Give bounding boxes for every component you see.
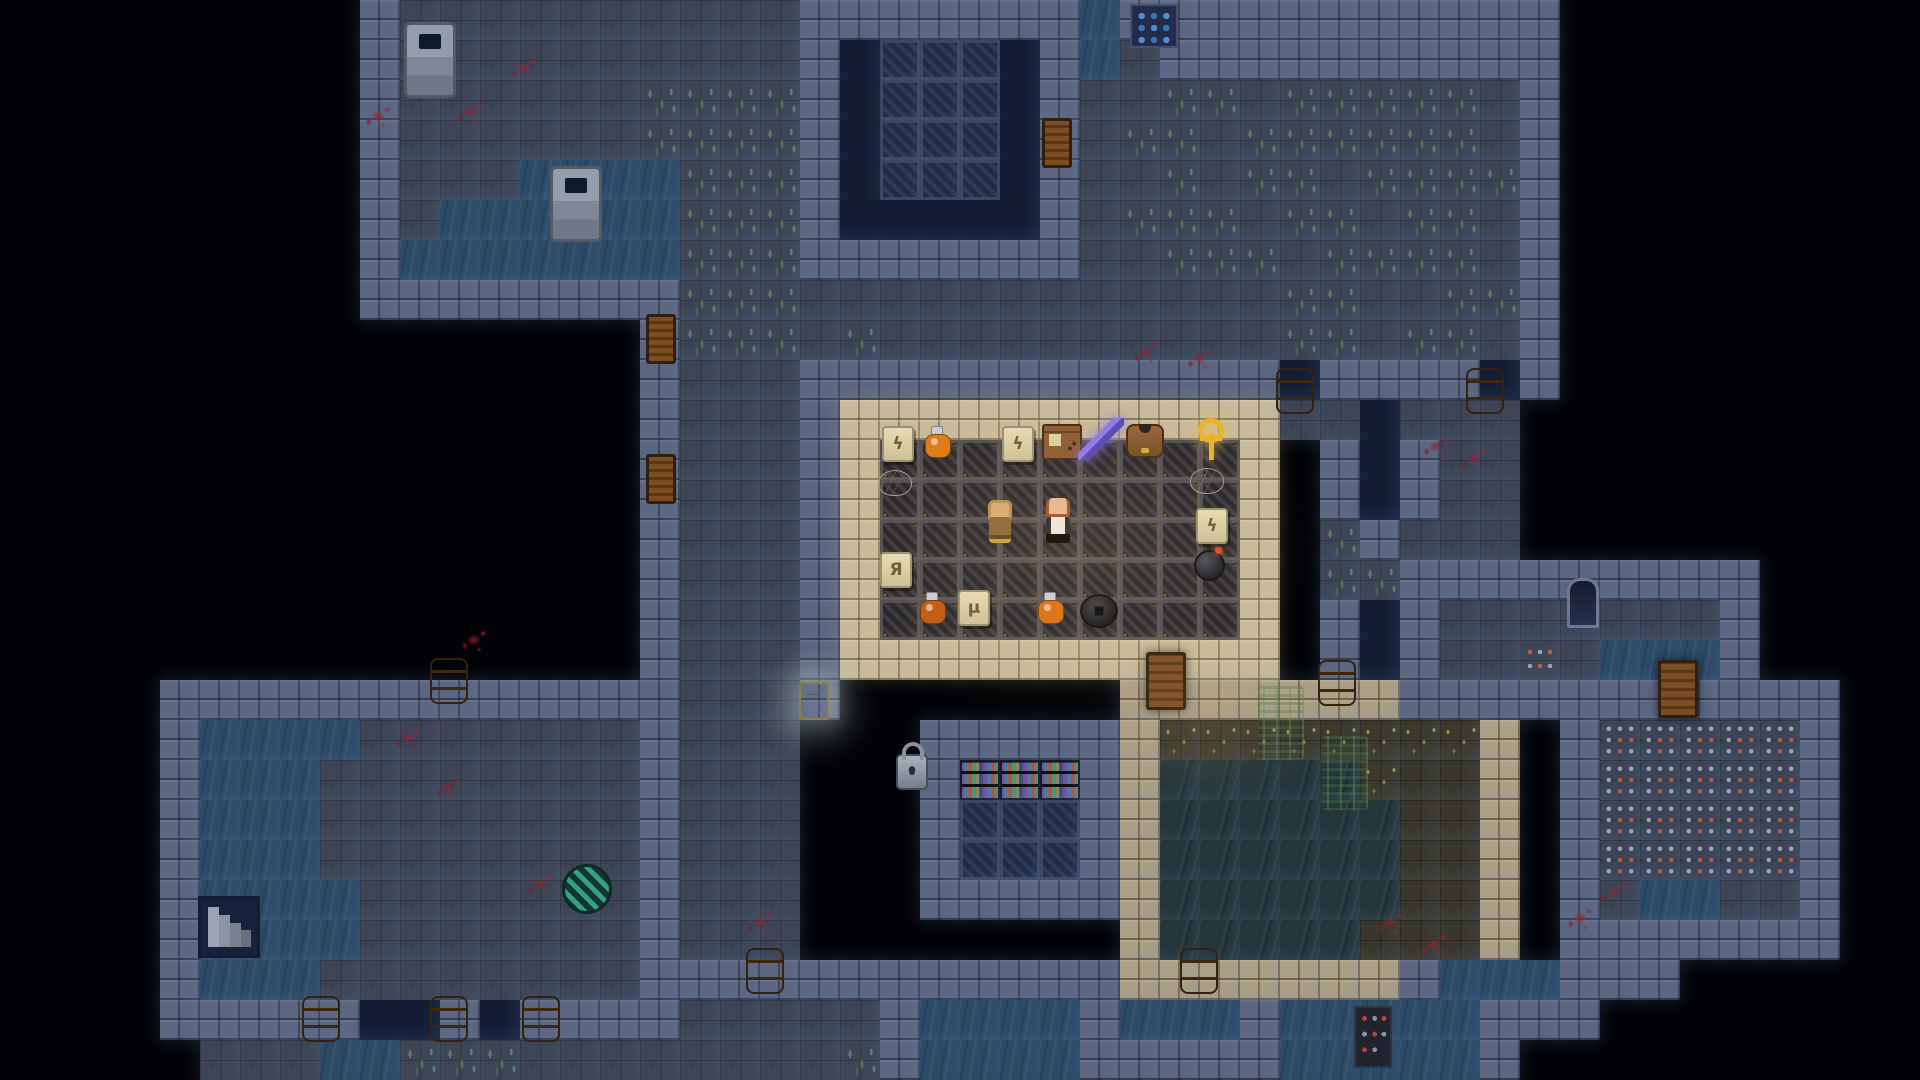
tile-floor[interactable] <box>480 0 520 40</box>
tile-water[interactable] <box>640 160 680 200</box>
tile-floor[interactable] <box>1080 160 1120 200</box>
tile-floor[interactable] <box>600 800 640 840</box>
tile-floor[interactable] <box>520 920 560 960</box>
tile-floor[interactable] <box>1200 280 1240 320</box>
tile-floor[interactable] <box>1080 320 1120 360</box>
tile-floor[interactable] <box>720 440 760 480</box>
tile-floor[interactable] <box>760 360 800 400</box>
tile-floor[interactable] <box>680 1000 720 1040</box>
tile-floor[interactable] <box>760 720 800 760</box>
tile-cave-water[interactable] <box>1280 800 1320 840</box>
tile-water[interactable] <box>440 200 480 240</box>
tile-cave-water[interactable] <box>1280 760 1320 800</box>
tile-floor-grass[interactable] <box>1240 120 1280 160</box>
tile-floor-grass[interactable] <box>1200 80 1240 120</box>
tile-floor-grass[interactable] <box>680 120 720 160</box>
enchanted-blade[interactable] <box>1078 418 1124 460</box>
tile-floor[interactable] <box>480 800 520 840</box>
mine-disc[interactable] <box>1080 594 1118 628</box>
tile-floor[interactable] <box>920 320 960 360</box>
tile-trap-plate[interactable] <box>1600 720 1640 760</box>
hooded-adventurer[interactable] <box>982 500 1018 554</box>
tile-floor[interactable] <box>1600 600 1640 640</box>
tile-water[interactable] <box>360 1040 400 1080</box>
sunken-stairs[interactable] <box>198 896 260 958</box>
tile-floor[interactable] <box>840 1000 880 1040</box>
tile-floor[interactable] <box>400 200 440 240</box>
tile-shop-floor[interactable] <box>920 480 960 520</box>
tile-water[interactable] <box>240 960 280 1000</box>
tile-trap-plate[interactable] <box>1720 800 1760 840</box>
tile-floor[interactable] <box>1480 520 1520 560</box>
dungeon-map[interactable]: ϟϟϟЯμ <box>0 0 1920 1080</box>
tile-cave-water[interactable] <box>1280 880 1320 920</box>
tile-trap-plate[interactable] <box>1720 840 1760 880</box>
tile-floor[interactable] <box>1120 280 1160 320</box>
tile-cave-floor[interactable] <box>1440 800 1480 840</box>
tile-floor-grass[interactable] <box>1320 520 1360 560</box>
well[interactable] <box>550 166 602 242</box>
tile-floor-grass[interactable] <box>1120 120 1160 160</box>
tile-floor-grass[interactable] <box>1280 160 1320 200</box>
tile-floor[interactable] <box>1080 80 1120 120</box>
tile-floor[interactable] <box>600 80 640 120</box>
tile-floor-grass[interactable] <box>680 280 720 320</box>
tile-floor[interactable] <box>720 1000 760 1040</box>
tile-floor[interactable] <box>760 640 800 680</box>
tile-water[interactable] <box>200 840 240 880</box>
tile-floor[interactable] <box>720 640 760 680</box>
tile-floor[interactable] <box>200 1040 240 1080</box>
tile-floor[interactable] <box>720 360 760 400</box>
tile-floor-grass[interactable] <box>760 200 800 240</box>
tile-shop-floor[interactable] <box>1120 560 1160 600</box>
tile-water[interactable] <box>280 880 320 920</box>
tile-floor[interactable] <box>760 1040 800 1080</box>
tile-water[interactable] <box>1280 1000 1320 1040</box>
tile-floor[interactable] <box>320 960 360 1000</box>
tile-floor[interactable] <box>1440 600 1480 640</box>
tile-floor[interactable] <box>800 280 840 320</box>
tile-floor[interactable] <box>600 120 640 160</box>
tile-trap-plate[interactable] <box>1600 760 1640 800</box>
tile-floor[interactable] <box>320 800 360 840</box>
tile-floor[interactable] <box>600 920 640 960</box>
tile-floor[interactable] <box>1680 600 1720 640</box>
tile-floor-grass[interactable] <box>1200 200 1240 240</box>
tile-water[interactable] <box>200 720 240 760</box>
tile-water[interactable] <box>640 200 680 240</box>
tile-trap-plate[interactable] <box>1640 720 1680 760</box>
tile-floor[interactable] <box>760 1000 800 1040</box>
tile-floor[interactable] <box>1200 120 1240 160</box>
tile-floor[interactable] <box>1760 880 1800 920</box>
tile-cave-grass[interactable] <box>1440 720 1480 760</box>
tile-floor[interactable] <box>760 680 800 720</box>
tile-floor[interactable] <box>680 920 720 960</box>
tile-water[interactable] <box>200 800 240 840</box>
scroll[interactable]: ϟ <box>882 426 914 462</box>
spear[interactable] <box>872 508 912 548</box>
tile-cave-water[interactable] <box>1240 920 1280 960</box>
scroll[interactable]: Я <box>880 552 912 588</box>
tile-floor[interactable] <box>1320 160 1360 200</box>
shopkeeper[interactable] <box>1040 498 1076 552</box>
tile-floor[interactable] <box>1440 640 1480 680</box>
tile-floor[interactable] <box>480 760 520 800</box>
tile-floor-grass[interactable] <box>1320 240 1360 280</box>
tile-shop-floor[interactable] <box>1200 600 1240 640</box>
tile-floor[interactable] <box>880 320 920 360</box>
tile-water[interactable] <box>240 720 280 760</box>
tile-cave-water[interactable] <box>1160 760 1200 800</box>
throwing-dart[interactable] <box>960 424 1000 464</box>
tile-water[interactable] <box>600 200 640 240</box>
tile-water[interactable] <box>280 920 320 960</box>
tile-floor[interactable] <box>400 840 440 880</box>
tile-floor[interactable] <box>1160 280 1200 320</box>
tile-floor[interactable] <box>520 800 560 840</box>
tile-shop-floor[interactable] <box>1120 520 1160 560</box>
tile-trap-plate[interactable] <box>1760 720 1800 760</box>
tile-floor[interactable] <box>1720 880 1760 920</box>
tile-trap-plate[interactable] <box>1760 800 1800 840</box>
tile-floor[interactable] <box>560 920 600 960</box>
tile-floor[interactable] <box>360 960 400 1000</box>
tile-floor-grass[interactable] <box>1320 80 1360 120</box>
tile-water[interactable] <box>1440 1000 1480 1040</box>
tile-cave-water[interactable] <box>1320 880 1360 920</box>
tile-floor[interactable] <box>760 440 800 480</box>
tile-floor[interactable] <box>360 760 400 800</box>
tile-shop-floor[interactable] <box>1160 520 1200 560</box>
tile-floor[interactable] <box>1120 240 1160 280</box>
tile-floor-grass[interactable] <box>720 320 760 360</box>
tile-floor[interactable] <box>680 400 720 440</box>
tile-trap-plate[interactable] <box>1720 760 1760 800</box>
tile-floor-grass[interactable] <box>1160 120 1200 160</box>
tile-floor[interactable] <box>600 760 640 800</box>
tile-floor[interactable] <box>440 800 480 840</box>
tile-floor[interactable] <box>720 520 760 560</box>
tile-floor[interactable] <box>480 880 520 920</box>
tile-floor[interactable] <box>400 800 440 840</box>
tile-floor[interactable] <box>1080 200 1120 240</box>
tile-floor[interactable] <box>1480 120 1520 160</box>
tile-floor-grass[interactable] <box>1440 200 1480 240</box>
tile-floor[interactable] <box>720 400 760 440</box>
tile-floor-grass[interactable] <box>480 1040 520 1080</box>
tile-water[interactable] <box>400 240 440 280</box>
tile-cave-water[interactable] <box>1200 880 1240 920</box>
tile-floor-grass[interactable] <box>1440 120 1480 160</box>
tile-floor-grass[interactable] <box>760 160 800 200</box>
tile-floor[interactable] <box>1080 280 1120 320</box>
tile-floor[interactable] <box>400 160 440 200</box>
tile-floor[interactable] <box>760 560 800 600</box>
tile-floor[interactable] <box>440 960 480 1000</box>
tile-floor-grass[interactable] <box>760 120 800 160</box>
tile-water[interactable] <box>320 720 360 760</box>
tile-water[interactable] <box>1120 1000 1160 1040</box>
tile-water[interactable] <box>1640 880 1680 920</box>
tile-shop-floor[interactable] <box>1080 480 1120 520</box>
tile-floor[interactable] <box>440 720 480 760</box>
scroll[interactable]: ϟ <box>1002 426 1034 462</box>
tile-ember-tile[interactable] <box>1520 640 1560 680</box>
tile-floor[interactable] <box>1040 320 1080 360</box>
tile-floor-grass[interactable] <box>720 80 760 120</box>
tile-floor-grass[interactable] <box>680 200 720 240</box>
tile-floor[interactable] <box>560 80 600 120</box>
tile-floor[interactable] <box>720 0 760 40</box>
tile-water[interactable] <box>240 760 280 800</box>
tile-floor-grass[interactable] <box>1360 560 1400 600</box>
tile-water[interactable] <box>1600 640 1640 680</box>
tile-floor-grass[interactable] <box>1120 200 1160 240</box>
tile-floor[interactable] <box>680 640 720 680</box>
barrel[interactable] <box>430 996 468 1042</box>
scroll[interactable]: ϟ <box>1196 508 1228 544</box>
barrel[interactable] <box>302 996 340 1042</box>
tile-floor[interactable] <box>680 720 720 760</box>
tile-water[interactable] <box>1480 960 1520 1000</box>
tile-floor[interactable] <box>720 680 760 720</box>
tile-floor[interactable] <box>760 0 800 40</box>
tile-floor[interactable] <box>680 600 720 640</box>
tile-floor[interactable] <box>600 1040 640 1080</box>
well[interactable] <box>404 22 456 98</box>
tile-floor[interactable] <box>680 360 720 400</box>
tile-floor-grass[interactable] <box>1400 80 1440 120</box>
tile-water[interactable] <box>240 840 280 880</box>
tile-floor-grass[interactable] <box>1280 320 1320 360</box>
tile-cave-water[interactable] <box>1160 800 1200 840</box>
tile-floor[interactable] <box>400 920 440 960</box>
tile-water[interactable] <box>1680 880 1720 920</box>
tile-floor[interactable] <box>1240 80 1280 120</box>
tile-water[interactable] <box>640 240 680 280</box>
tile-water[interactable] <box>280 720 320 760</box>
tile-cave-water[interactable] <box>1200 840 1240 880</box>
tile-cave-water[interactable] <box>1280 920 1320 960</box>
tile-floor[interactable] <box>680 40 720 80</box>
tile-floor-grass[interactable] <box>680 160 720 200</box>
tile-water[interactable] <box>1080 40 1120 80</box>
tile-water[interactable] <box>320 880 360 920</box>
tile-floor-grass[interactable] <box>1400 160 1440 200</box>
tile-floor[interactable] <box>560 960 600 1000</box>
tile-floor-grass[interactable] <box>1480 280 1520 320</box>
tile-trap-plate[interactable] <box>1640 760 1680 800</box>
tile-floor[interactable] <box>680 680 720 720</box>
gem-wand[interactable] <box>994 588 1034 628</box>
tile-floor-grass[interactable] <box>680 240 720 280</box>
tile-floor[interactable] <box>320 840 360 880</box>
tile-floor-grass[interactable] <box>640 120 680 160</box>
tile-floor[interactable] <box>1440 480 1480 520</box>
tile-floor[interactable] <box>680 880 720 920</box>
pasty[interactable] <box>878 470 912 496</box>
tile-water[interactable] <box>1160 1000 1200 1040</box>
tile-floor-grass[interactable] <box>1440 160 1480 200</box>
tile-water[interactable] <box>600 240 640 280</box>
tile-floor[interactable] <box>1280 240 1320 280</box>
tile-cave-grass[interactable] <box>1200 720 1240 760</box>
tile-floor[interactable] <box>1480 600 1520 640</box>
tile-floor[interactable] <box>1240 320 1280 360</box>
tile-shop-floor[interactable] <box>1080 520 1120 560</box>
tile-water[interactable] <box>440 240 480 280</box>
tile-floor[interactable] <box>1240 200 1280 240</box>
tile-floor-grass[interactable] <box>720 240 760 280</box>
tile-shop-floor[interactable] <box>920 520 960 560</box>
tile-floor[interactable] <box>1240 280 1280 320</box>
tile-floor-grass[interactable] <box>1320 200 1360 240</box>
tile-trap-plate[interactable] <box>1640 840 1680 880</box>
tile-floor-grass[interactable] <box>640 80 680 120</box>
tile-cave-floor[interactable] <box>1400 760 1440 800</box>
tile-water[interactable] <box>200 960 240 1000</box>
tile-floor[interactable] <box>760 760 800 800</box>
golden-ankh[interactable] <box>1196 418 1226 460</box>
tile-floor-grass[interactable] <box>760 280 800 320</box>
tile-trap-plate[interactable] <box>1680 840 1720 880</box>
tile-floor[interactable] <box>1480 320 1520 360</box>
tile-floor[interactable] <box>640 40 680 80</box>
tile-floor[interactable] <box>600 40 640 80</box>
tile-floor-grass[interactable] <box>1280 80 1320 120</box>
tile-water[interactable] <box>1400 1040 1440 1080</box>
tile-floor[interactable] <box>1480 200 1520 240</box>
barrel[interactable] <box>746 948 784 994</box>
shop-cave-door[interactable] <box>1146 652 1186 710</box>
tile-floor[interactable] <box>440 160 480 200</box>
tile-bookshelf[interactable] <box>1040 760 1080 800</box>
tile-floor[interactable] <box>720 840 760 880</box>
tile-floor[interactable] <box>1480 480 1520 520</box>
barrel[interactable] <box>1466 368 1504 414</box>
tile-floor[interactable] <box>360 800 400 840</box>
tile-floor[interactable] <box>680 440 720 480</box>
tile-floor-grass[interactable] <box>1320 560 1360 600</box>
tile-water[interactable] <box>320 1040 360 1080</box>
tile-floor[interactable] <box>760 800 800 840</box>
tile-floor-grass[interactable] <box>1320 120 1360 160</box>
tile-floor[interactable] <box>880 280 920 320</box>
tile-trap-plate[interactable] <box>1640 800 1680 840</box>
tile-floor-grass[interactable] <box>1160 200 1200 240</box>
tile-floor[interactable] <box>1200 160 1240 200</box>
tile-floor-grass[interactable] <box>1360 160 1400 200</box>
tile-floor[interactable] <box>560 120 600 160</box>
tile-floor[interactable] <box>1360 280 1400 320</box>
tile-floor[interactable] <box>760 480 800 520</box>
tile-floor-grass[interactable] <box>720 120 760 160</box>
tile-floor-grass[interactable] <box>680 80 720 120</box>
tile-water[interactable] <box>320 920 360 960</box>
tile-water[interactable] <box>520 240 560 280</box>
tile-floor[interactable] <box>520 80 560 120</box>
tile-floor-grass[interactable] <box>1320 280 1360 320</box>
tile-cave-grass[interactable] <box>1400 720 1440 760</box>
tile-floor-grass[interactable] <box>1160 240 1200 280</box>
scroll[interactable]: μ <box>958 590 990 626</box>
tile-floor[interactable] <box>800 1000 840 1040</box>
tile-water[interactable] <box>1400 1000 1440 1040</box>
tile-floor[interactable] <box>680 480 720 520</box>
tile-cave-water[interactable] <box>1160 880 1200 920</box>
striped-trap-disc[interactable] <box>562 864 612 914</box>
tile-water[interactable] <box>280 760 320 800</box>
tile-water[interactable] <box>280 960 320 1000</box>
tile-floor[interactable] <box>480 840 520 880</box>
tile-water[interactable] <box>1280 1040 1320 1080</box>
tile-floor[interactable] <box>520 120 560 160</box>
tile-cave-floor[interactable] <box>1440 760 1480 800</box>
tile-floor-grass[interactable] <box>1240 160 1280 200</box>
tile-shop-floor[interactable] <box>1160 600 1200 640</box>
tile-floor[interactable] <box>720 1040 760 1080</box>
tile-floor[interactable] <box>400 120 440 160</box>
tile-floor[interactable] <box>480 960 520 1000</box>
tile-floor[interactable] <box>960 320 1000 360</box>
tile-floor[interactable] <box>680 800 720 840</box>
tile-floor-grass[interactable] <box>1280 120 1320 160</box>
tile-floor[interactable] <box>480 160 520 200</box>
tile-water[interactable] <box>960 1000 1000 1040</box>
barrel[interactable] <box>1318 660 1356 706</box>
tile-floor-grass[interactable] <box>400 1040 440 1080</box>
tile-water[interactable] <box>1040 1000 1080 1040</box>
tile-trap-plate[interactable] <box>1760 840 1800 880</box>
tile-floor[interactable] <box>360 920 400 960</box>
tile-cave-water[interactable] <box>1240 880 1280 920</box>
tile-floor[interactable] <box>840 280 880 320</box>
tile-floor[interactable] <box>400 960 440 1000</box>
tile-floor-grass[interactable] <box>720 280 760 320</box>
barrel[interactable] <box>430 658 468 704</box>
pasty[interactable] <box>1190 468 1224 494</box>
tile-trap-plate[interactable] <box>1680 720 1720 760</box>
tile-floor[interactable] <box>920 280 960 320</box>
tile-floor-grass[interactable] <box>840 1040 880 1080</box>
tile-floor-grass[interactable] <box>1400 320 1440 360</box>
tile-floor[interactable] <box>600 0 640 40</box>
tile-floor-grass[interactable] <box>1160 80 1200 120</box>
tile-cave-floor[interactable] <box>1400 840 1440 880</box>
tile-floor[interactable] <box>680 520 720 560</box>
tile-shop-floor[interactable] <box>1120 600 1160 640</box>
tile-floor[interactable] <box>800 320 840 360</box>
tile-cave-water[interactable] <box>1240 800 1280 840</box>
wooden-chest[interactable] <box>1042 424 1082 460</box>
tile-floor[interactable] <box>440 840 480 880</box>
barrel[interactable] <box>522 996 560 1042</box>
tile-shop-floor[interactable] <box>1120 480 1160 520</box>
tile-water[interactable] <box>240 800 280 840</box>
tile-floor[interactable] <box>1480 640 1520 680</box>
tile-cave-water[interactable] <box>1280 840 1320 880</box>
tile-floor[interactable] <box>320 760 360 800</box>
tile-floor-grass[interactable] <box>440 1040 480 1080</box>
tile-water[interactable] <box>1080 0 1120 40</box>
tile-floor[interactable] <box>1440 520 1480 560</box>
tile-cave-water[interactable] <box>1200 800 1240 840</box>
tile-floor-grass[interactable] <box>1400 120 1440 160</box>
tile-floor-grass[interactable] <box>1280 280 1320 320</box>
tile-cave-floor[interactable] <box>1440 880 1480 920</box>
